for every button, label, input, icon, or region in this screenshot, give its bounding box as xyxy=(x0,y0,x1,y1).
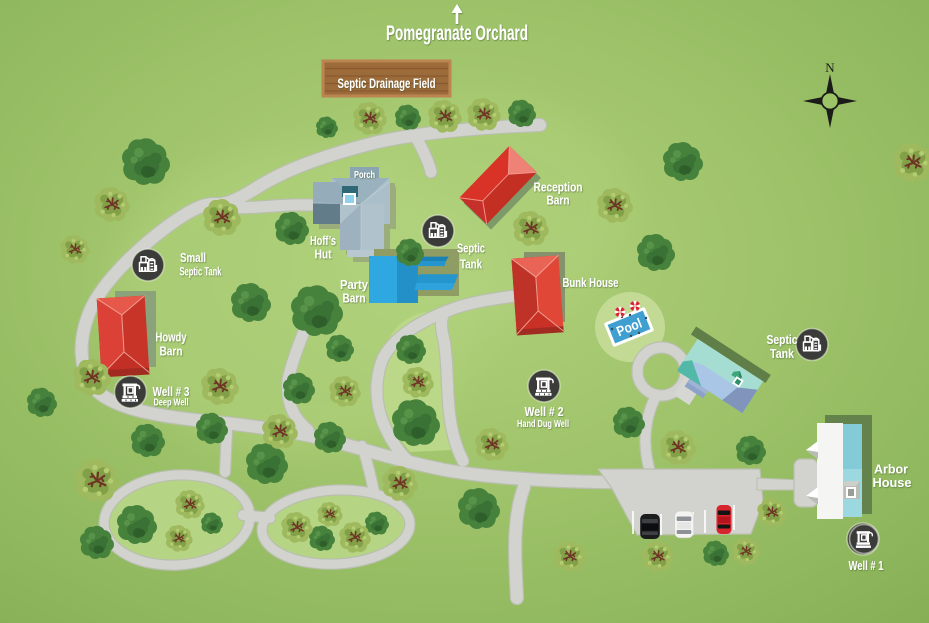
svg-text:Well # 1: Well # 1 xyxy=(849,558,884,573)
svg-text:Bunk House: Bunk House xyxy=(563,275,619,290)
svg-text:Barn: Barn xyxy=(547,193,570,208)
svg-text:Septic Drainage Field: Septic Drainage Field xyxy=(338,75,436,91)
svg-text:Septic: Septic xyxy=(767,332,798,347)
svg-text:House: House xyxy=(873,475,912,490)
svg-text:Septic: Septic xyxy=(457,241,485,256)
svg-text:Septic Tank: Septic Tank xyxy=(180,265,222,279)
svg-text:Barn: Barn xyxy=(343,291,366,306)
svg-text:Hut: Hut xyxy=(315,247,332,262)
svg-text:Barn: Barn xyxy=(160,344,183,359)
svg-text:N: N xyxy=(825,60,835,75)
svg-text:Howdy: Howdy xyxy=(156,330,187,345)
svg-text:Well # 2: Well # 2 xyxy=(525,404,564,419)
svg-text:Tank: Tank xyxy=(770,346,795,361)
svg-text:Small: Small xyxy=(180,250,206,265)
svg-text:Tank: Tank xyxy=(460,257,482,272)
svg-text:Deep Well: Deep Well xyxy=(154,398,189,409)
svg-text:Hand Dug Well: Hand Dug Well xyxy=(517,419,569,430)
svg-text:Pomegranate Orchard: Pomegranate Orchard xyxy=(386,22,528,45)
svg-text:Porch: Porch xyxy=(354,170,375,181)
